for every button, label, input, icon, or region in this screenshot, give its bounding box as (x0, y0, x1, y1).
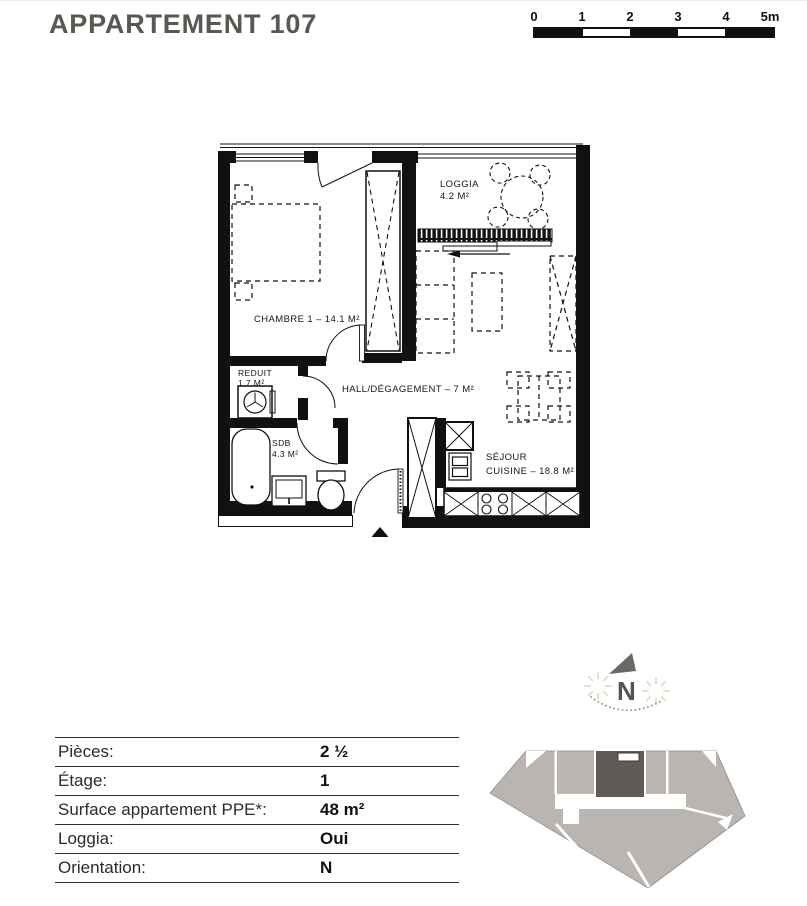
floor-plan-sheet: APPARTEMENT 107 0 1 2 3 4 5m (0, 0, 807, 906)
kitchen-tall-cabinet (408, 418, 436, 518)
row-label: Orientation: (58, 854, 146, 881)
north-arrow-icon (609, 653, 636, 674)
sink (272, 476, 306, 506)
washing-machine (238, 386, 275, 418)
bathtub (232, 429, 270, 505)
scale-bar: 0 1 2 3 4 5m (533, 9, 775, 43)
scale-strip (533, 27, 775, 38)
room-label-sejour: SÉJOUR (486, 452, 527, 463)
living-wardrobe (550, 256, 576, 351)
row-label: Pièces: (58, 738, 114, 765)
table-row: Orientation: N (55, 853, 459, 883)
row-label: Étage: (58, 767, 107, 794)
row-label: Loggia: (58, 825, 114, 852)
room-area-loggia: 4.2 M² (440, 191, 469, 202)
scale-segment (583, 29, 631, 36)
room-label-loggia: LOGGIA (440, 179, 479, 190)
slide-direction-arrow (447, 251, 510, 258)
room-label-sdb: SDB (272, 438, 291, 448)
scale-segment (678, 29, 726, 36)
sun-icon (585, 673, 611, 699)
coffee-table (472, 273, 502, 331)
parapet (219, 516, 353, 527)
room-label-chambre: CHAMBRE 1 – 14.1 M² (254, 314, 360, 325)
bedroom-window (236, 151, 304, 163)
sun-icon (643, 678, 669, 704)
bathroom-door-swing (297, 423, 338, 464)
scale-tick: 4 (722, 9, 729, 24)
bedroom-door (326, 325, 365, 361)
north-compass: N (575, 646, 675, 726)
dining-set (507, 372, 570, 422)
entrance-marker-icon (368, 527, 392, 537)
entrance-door (354, 469, 403, 513)
table-row: Étage: 1 (55, 766, 459, 795)
kitchen-counter (444, 488, 580, 516)
row-value: 1 (320, 767, 329, 794)
north-letter: N (617, 676, 636, 706)
loggia-threshold (418, 229, 552, 242)
scale-tick: 0 (530, 9, 537, 24)
table-row: Pièces: 2 ½ (55, 737, 459, 766)
unit-highlight (595, 750, 645, 798)
scale-segment (535, 29, 583, 36)
bedroom-wardrobe (366, 171, 400, 351)
row-value: 48 m² (320, 796, 364, 823)
room-label-hall: HALL/DÉGAGEMENT – 7 M² (342, 384, 474, 395)
scale-tick-labels: 0 1 2 3 4 5m (533, 9, 775, 25)
row-value: Oui (320, 825, 348, 852)
room-area-sdb: 4.3 M² (272, 449, 299, 459)
toilet (317, 471, 345, 510)
page-title: APPARTEMENT 107 (49, 9, 317, 40)
scale-segment (725, 29, 773, 36)
row-label: Surface appartement PPE*: (58, 796, 267, 823)
bed (232, 185, 320, 300)
table-row: Surface appartement PPE*: 48 m² (55, 795, 459, 824)
scale-tick: 2 (626, 9, 633, 24)
row-value: 2 ½ (320, 738, 348, 765)
window-door-swing (318, 163, 372, 187)
scale-tick: 5m (761, 9, 780, 24)
scale-tick: 3 (674, 9, 681, 24)
kitchen-upper-cabinet (445, 422, 473, 450)
sofa (416, 251, 454, 353)
oven (449, 453, 471, 480)
floor-plan-drawing: LOGGIA 4.2 M² CHAMBRE 1 – 14.1 M² REDUIT… (214, 135, 594, 537)
building-locator (478, 736, 758, 904)
apartment-info-table: Pièces: 2 ½ Étage: 1 Surface appartement… (55, 737, 459, 883)
room-label-cuisine: CUISINE – 18.8 M² (486, 466, 574, 477)
scale-tick: 1 (578, 9, 585, 24)
loggia-furniture (488, 163, 550, 229)
table-row: Loggia: Oui (55, 824, 459, 853)
room-area-reduit: 1.7 M² (238, 378, 265, 388)
scale-segment (630, 29, 678, 36)
row-value: N (320, 854, 332, 881)
room-label-reduit: REDUIT (238, 368, 272, 378)
